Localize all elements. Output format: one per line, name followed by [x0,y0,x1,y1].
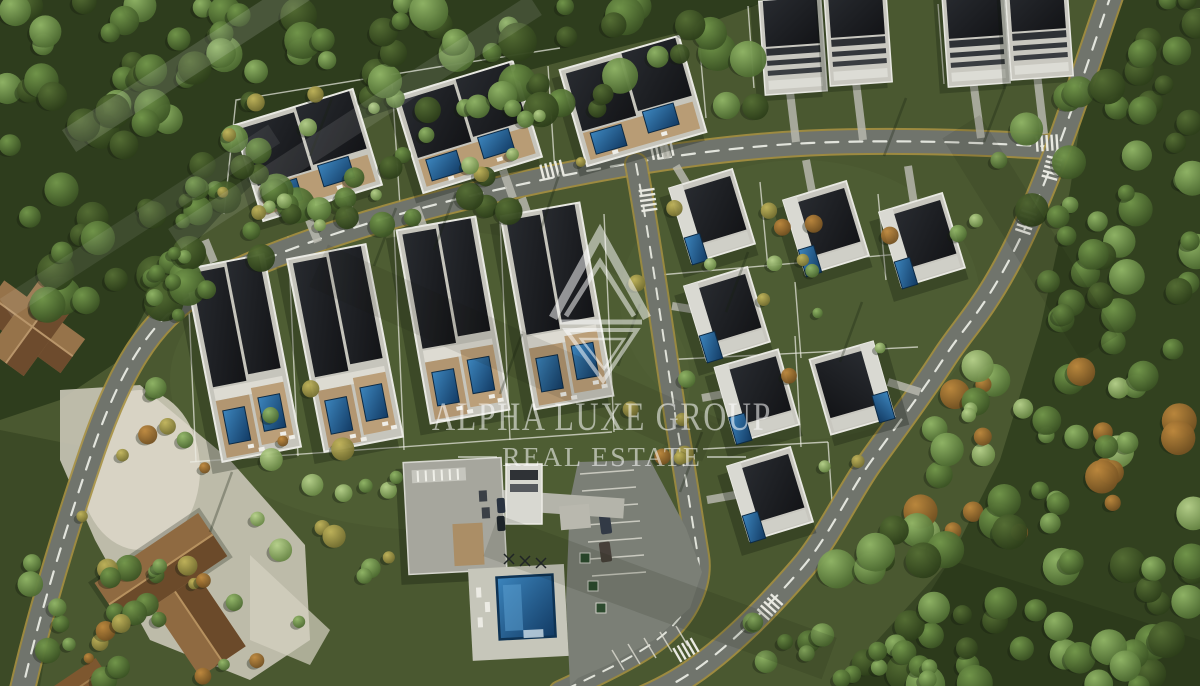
parked-car [497,498,506,514]
tree [601,12,626,37]
roof-deck [452,523,484,567]
tree [344,167,364,187]
tree [704,258,716,270]
tree [1180,231,1199,250]
tree [196,573,211,588]
tree [757,293,770,306]
tree [992,514,1027,549]
tree [962,350,994,382]
tree [851,455,864,468]
tree [817,549,856,588]
tree [1095,435,1118,458]
tree [1010,112,1043,145]
tree [307,86,323,102]
tree [172,309,185,322]
tree [145,377,167,399]
tree [222,128,236,142]
tree [1122,140,1152,170]
tree [152,559,167,574]
tree [678,370,695,387]
tree [104,268,128,292]
tree [774,219,791,236]
tree [62,638,75,651]
tree [805,215,823,233]
tree [730,41,767,78]
tree [72,287,100,315]
tree [335,484,353,502]
tree [101,23,120,42]
tree [277,436,288,447]
tree [675,10,705,40]
tree [1128,39,1157,68]
tree [23,554,41,572]
tree [906,542,942,578]
tree [392,12,410,30]
tree [247,93,265,111]
tree [177,432,194,449]
tree [110,131,139,160]
tree [100,567,121,588]
tree [244,60,268,84]
tree [1047,205,1070,228]
concrete-pad [559,504,591,531]
tree [1105,495,1121,511]
tree [307,197,331,221]
tree [359,479,373,493]
tree [1052,145,1086,179]
tree [165,274,181,290]
tree [961,408,976,423]
tree [875,343,886,354]
tree [112,614,131,633]
tree [881,227,899,245]
tree [107,656,130,679]
tree [299,118,317,136]
top-edge-house [815,0,893,93]
tree [1031,482,1049,500]
tree [1010,636,1034,660]
tree [302,380,319,397]
tree [593,84,614,105]
tree [1025,599,1047,621]
tree [761,203,777,219]
hvac-unit [479,490,488,501]
tree [250,512,265,527]
pool-house-window [510,484,538,492]
tree [1078,239,1109,270]
tree [178,556,198,576]
aerial-site-render: ALPHA LUXE GROUP REAL ESTATE [0,0,1200,686]
tree [969,214,983,228]
tree [1163,37,1192,66]
tree [146,289,163,306]
tree [868,642,887,661]
tree [647,46,669,68]
tree [805,264,819,278]
tree [1161,421,1195,455]
tree [149,265,165,281]
tree [856,533,895,572]
tree [370,212,396,238]
tree [670,44,690,64]
tree [974,428,992,446]
tree [226,594,243,611]
tree [953,605,972,624]
tree [269,538,292,561]
tree [247,244,275,272]
tree [1067,358,1095,386]
tree [556,26,577,47]
tree [1090,69,1126,105]
tree [1013,399,1033,419]
tree [930,433,963,466]
tree [972,443,995,466]
tree [1040,513,1061,534]
tree [1166,278,1193,305]
tree [218,659,230,671]
tree [1163,339,1184,360]
watermark-tagline-text: REAL ESTATE [502,442,702,472]
tree [331,437,354,460]
tree [242,222,260,240]
tree [1165,133,1186,154]
tree [390,471,403,484]
tree [301,474,323,496]
tree [576,157,586,167]
tree [335,206,359,230]
tree [1128,96,1156,124]
hvac-unit [482,507,491,518]
tree [249,653,264,668]
tree [819,460,831,472]
tree [812,308,822,318]
tree [167,27,190,50]
tree [38,82,67,111]
tree [918,592,950,624]
tree [1141,556,1165,580]
tree [357,568,373,584]
tree [1110,547,1146,583]
tree [781,368,797,384]
tree [797,254,809,266]
tree [1085,460,1119,494]
tree [323,525,346,548]
tree [871,659,887,675]
tree [197,280,216,299]
main-building [395,458,507,585]
tree [383,551,395,563]
tree [138,425,157,444]
tree [260,448,283,471]
tree [1032,406,1061,435]
tree [168,247,181,260]
tree [1128,361,1159,392]
tree [533,110,545,122]
tree [529,73,550,94]
tree [1044,612,1073,641]
tree [84,653,94,663]
pool-steps [523,629,543,638]
watermark-brand-text: ALPHA LUXE GROUP [432,394,772,439]
tree [1116,432,1138,454]
tree [767,255,783,271]
tree [1059,550,1084,575]
tree [318,51,336,69]
pool-highlight [503,584,523,631]
tree [1064,425,1088,449]
tree [48,598,66,616]
tree [251,205,266,220]
tree [199,462,210,473]
tree [1047,492,1070,515]
tree [1148,621,1185,658]
tree [1110,651,1141,682]
tree [0,134,21,156]
tree [1109,259,1145,295]
tree [506,148,519,161]
tree [504,100,521,117]
tree [132,109,160,137]
site-plan-svg: ALPHA LUXE GROUP REAL ESTATE [0,0,1200,686]
tree [19,206,41,228]
tree [1155,75,1174,94]
tree [151,612,166,627]
tree [18,571,44,597]
tree [418,127,434,143]
tree [293,616,305,628]
tree [461,157,479,175]
tree [415,97,441,123]
tree [44,172,78,206]
tree [35,638,61,664]
tree [713,92,740,119]
top-edge-house [996,0,1074,87]
tree [277,193,292,208]
tree [380,156,403,179]
tree [988,484,1021,517]
tree [985,587,1018,620]
tree [1057,226,1077,246]
tree [404,209,422,227]
tree [314,219,326,231]
tree [370,189,381,200]
tree [195,668,212,685]
tree [956,637,978,659]
tree [262,407,278,423]
tree [159,418,176,435]
tree [742,94,768,120]
tree [116,449,129,462]
tree [1087,211,1107,231]
tree [1118,185,1135,202]
tree [495,198,522,225]
tree [311,28,334,51]
tree [29,15,61,47]
tree [76,511,87,522]
tree [666,200,682,216]
tree [950,225,967,242]
